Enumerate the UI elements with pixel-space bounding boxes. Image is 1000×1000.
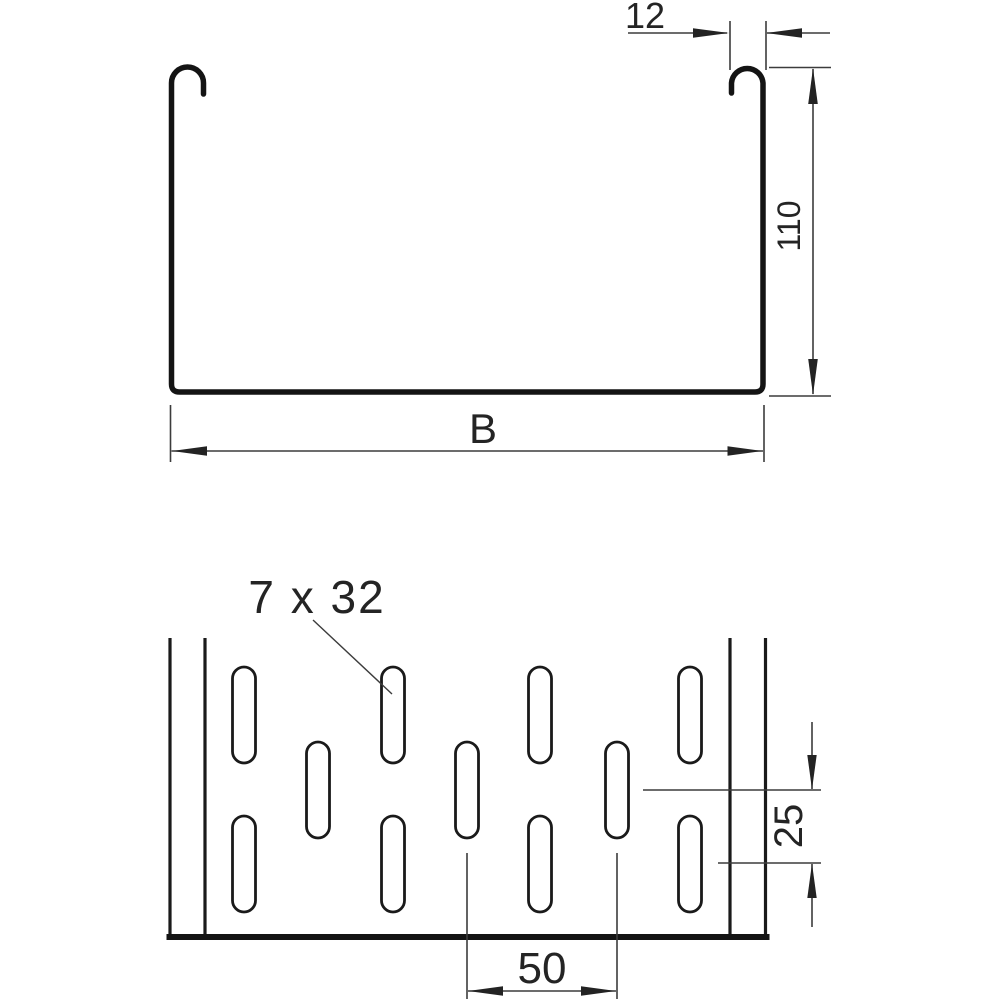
technical-drawing-canvas: 12 110 B <box>0 0 1000 1000</box>
slot-hole <box>606 742 629 838</box>
slot-pitch-label: 50 <box>518 944 567 993</box>
slot-size-label: 7 x 32 <box>248 571 385 623</box>
slot-hole <box>233 667 256 763</box>
slot-hole <box>529 667 552 763</box>
slot-hole <box>382 667 405 763</box>
slot-hole <box>307 742 330 838</box>
slot-hole <box>456 742 479 838</box>
side-height-label: 110 <box>771 200 807 251</box>
slot-hole <box>382 816 405 912</box>
row-spacing-label: 25 <box>767 804 811 849</box>
slot-hole <box>233 816 256 912</box>
slot-hole <box>529 816 552 912</box>
slot-hole <box>679 816 702 912</box>
slot-hole <box>679 667 702 763</box>
drawing-background <box>0 0 1000 1000</box>
tray-width-label: B <box>469 405 497 452</box>
cable-tray-drawing: 12 110 B <box>0 0 1000 1000</box>
hook-width-label: 12 <box>625 0 665 36</box>
